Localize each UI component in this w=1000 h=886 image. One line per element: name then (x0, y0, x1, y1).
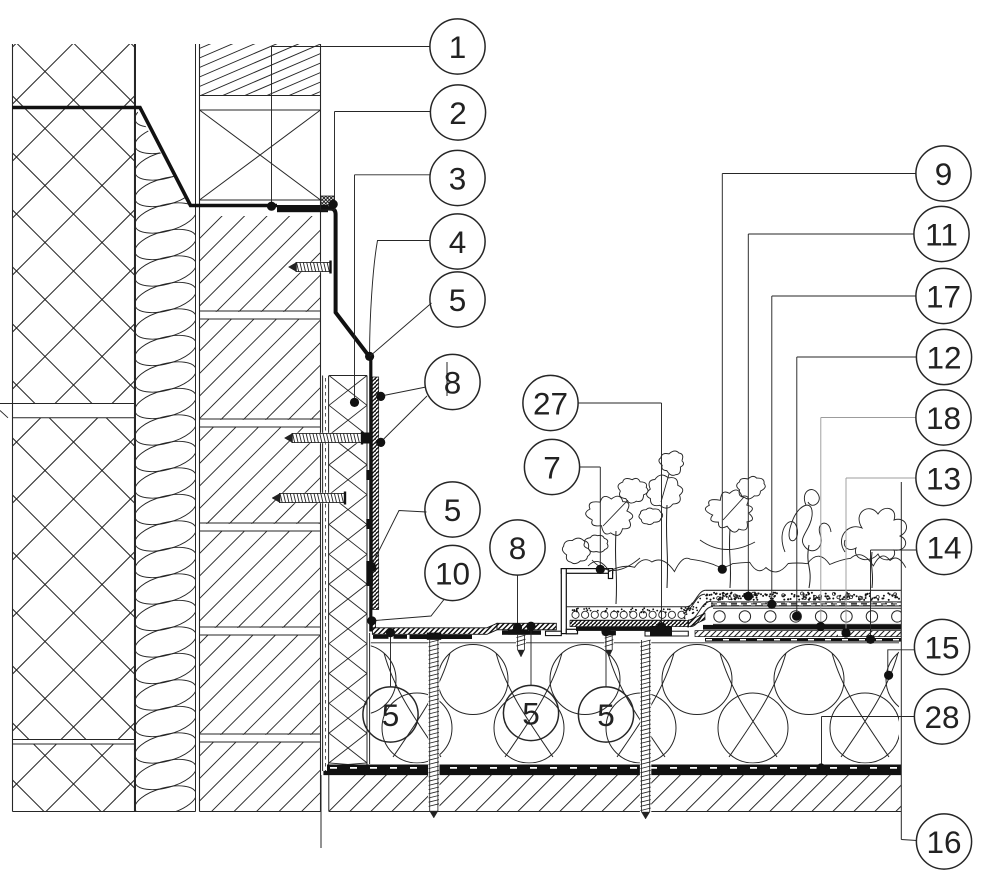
svg-text:17: 17 (926, 278, 961, 314)
svg-text:5: 5 (444, 492, 462, 528)
svg-text:5: 5 (382, 697, 400, 733)
svg-text:5: 5 (449, 282, 467, 318)
svg-text:18: 18 (926, 400, 961, 436)
svg-text:4: 4 (449, 224, 467, 260)
svg-text:5: 5 (597, 697, 615, 733)
svg-text:28: 28 (924, 699, 959, 735)
svg-text:14: 14 (926, 529, 961, 565)
svg-text:9: 9 (935, 156, 953, 192)
svg-text:8: 8 (444, 364, 462, 400)
svg-text:13: 13 (926, 460, 961, 496)
svg-text:15: 15 (924, 629, 959, 665)
svg-text:12: 12 (926, 339, 961, 375)
svg-text:16: 16 (926, 824, 961, 860)
svg-text:27: 27 (533, 385, 568, 421)
svg-text:1: 1 (449, 29, 467, 65)
svg-text:7: 7 (543, 449, 561, 485)
svg-text:2: 2 (449, 95, 467, 131)
svg-text:8: 8 (509, 530, 527, 566)
svg-text:5: 5 (522, 695, 540, 731)
svg-text:3: 3 (449, 160, 467, 196)
svg-text:10: 10 (435, 555, 470, 591)
svg-text:11: 11 (925, 216, 958, 252)
